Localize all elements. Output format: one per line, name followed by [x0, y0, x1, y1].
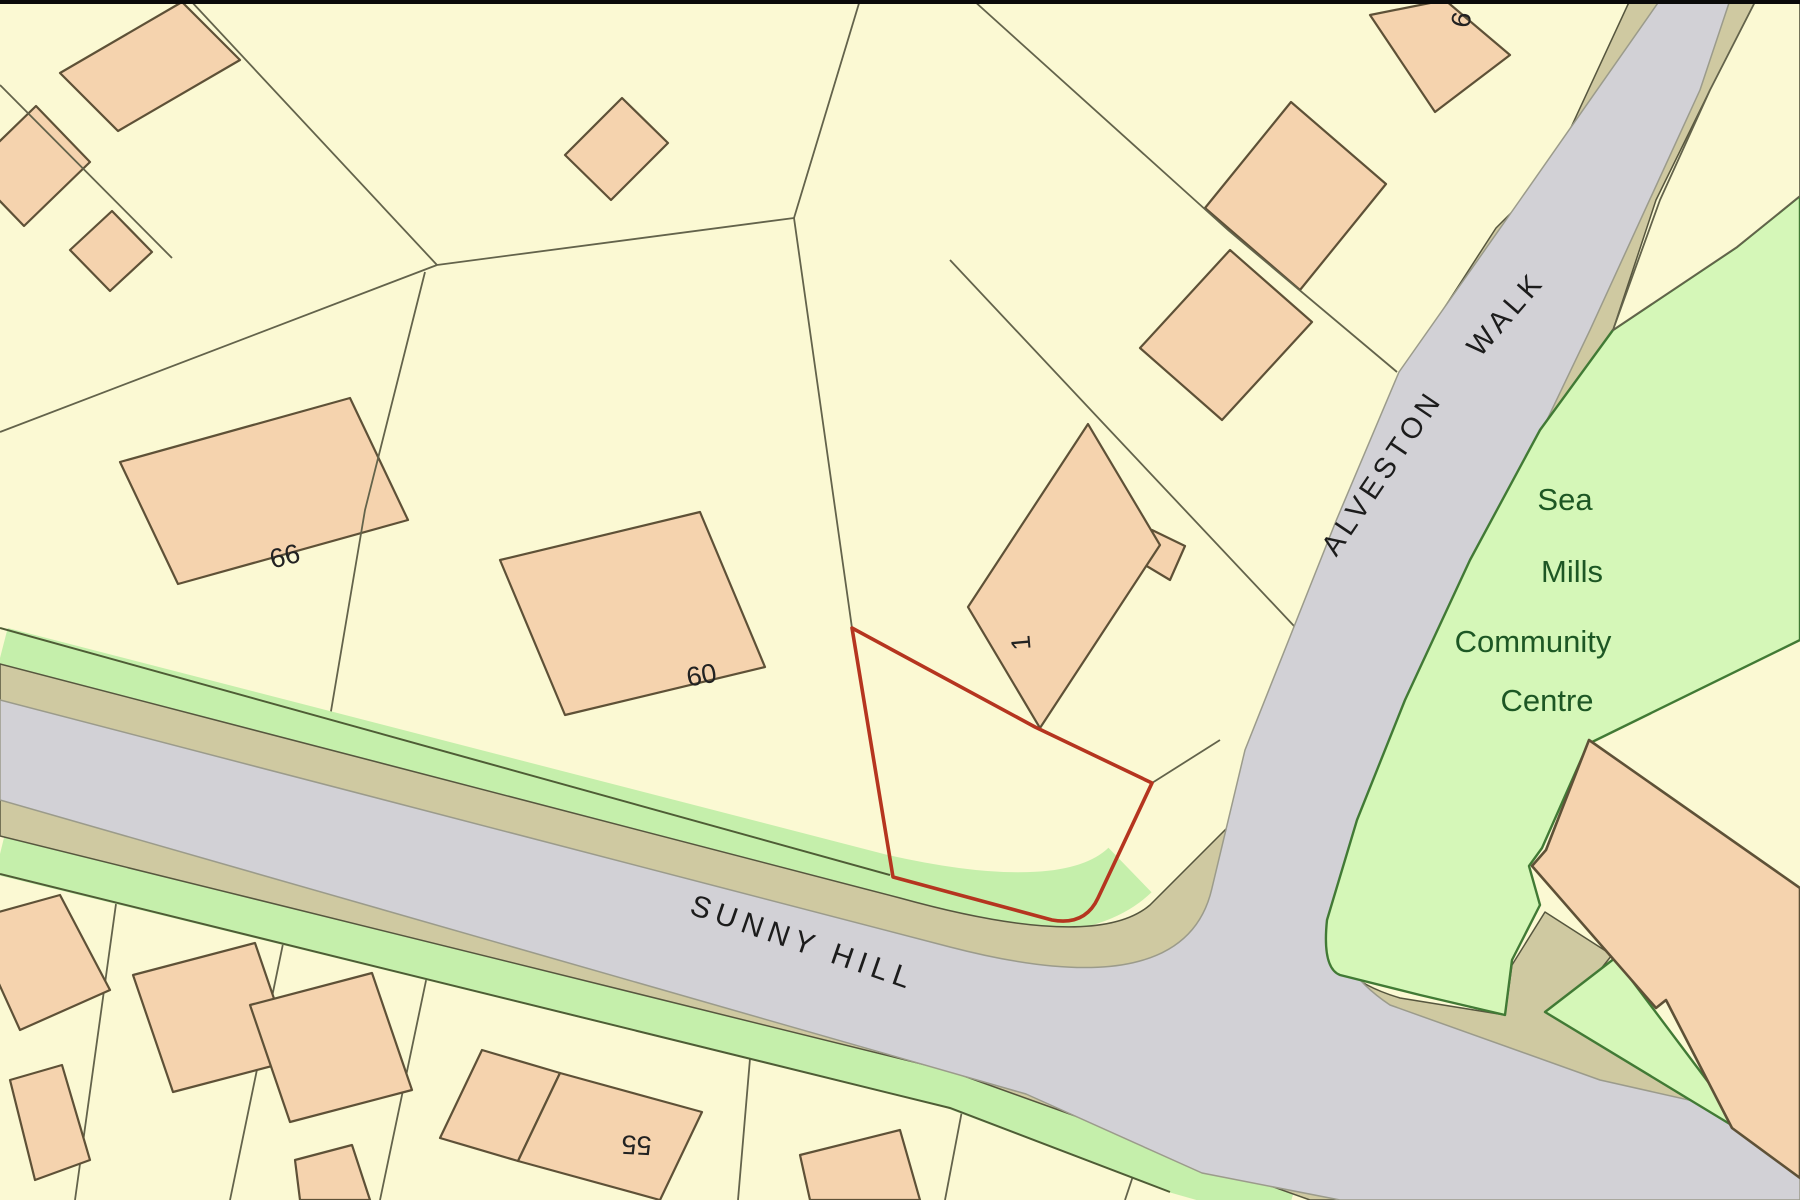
- map-canvas[interactable]: SUNNY HILL ALVESTON WALK Sea Mills Commu…: [0, 0, 1800, 1200]
- top-border: [0, 0, 1800, 4]
- house-number-1: 1: [1005, 634, 1036, 652]
- house-number-60: 60: [684, 658, 719, 693]
- community-centre-label-line3: Community: [1455, 624, 1612, 659]
- community-centre-label-line4: Centre: [1500, 683, 1593, 718]
- community-centre-label-line1: Sea: [1537, 482, 1593, 517]
- map-container: SUNNY HILL ALVESTON WALK Sea Mills Commu…: [0, 0, 1800, 1200]
- community-centre-label-line2: Mills: [1541, 554, 1603, 589]
- house-number-55: 55: [621, 1129, 653, 1161]
